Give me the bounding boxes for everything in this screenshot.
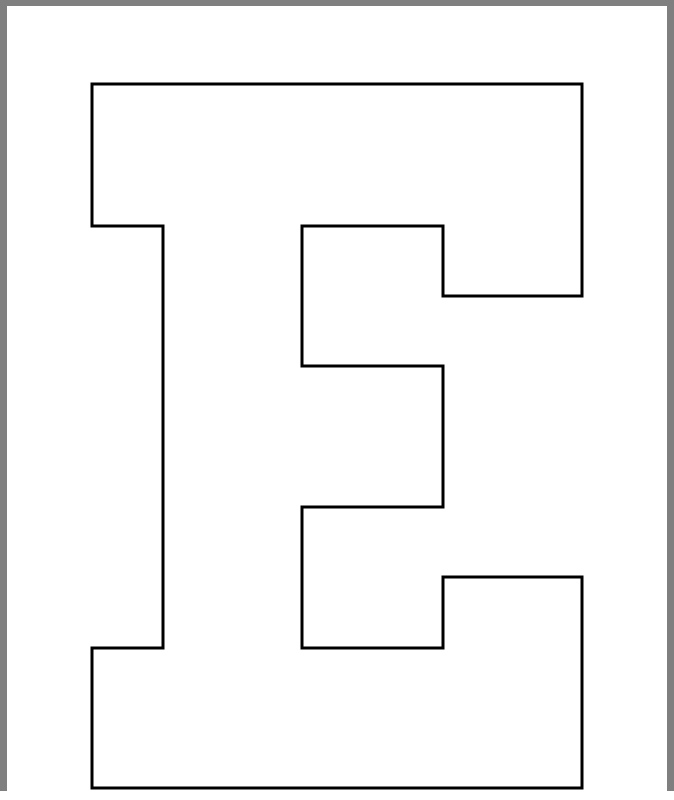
letter-template-graphic [0, 0, 674, 800]
letter-e-outline-shape [92, 84, 582, 788]
viewer-canvas [0, 0, 674, 800]
